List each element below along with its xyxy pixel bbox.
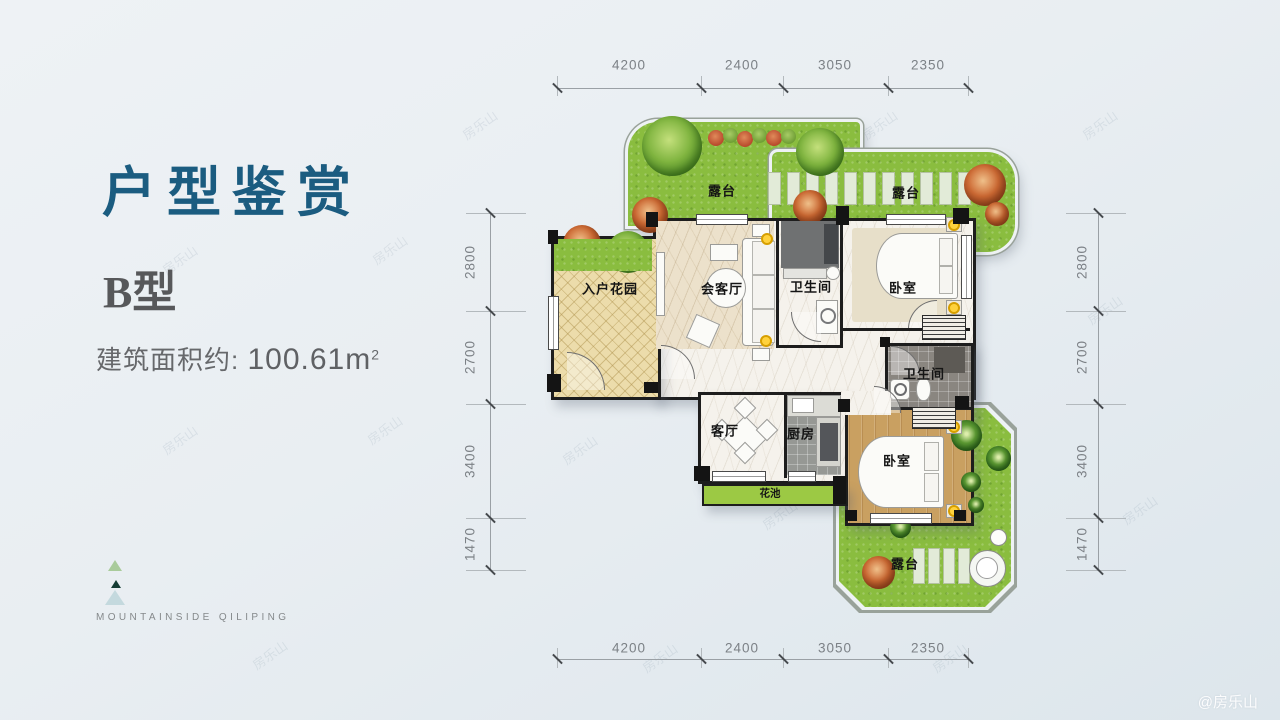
flower-bush <box>752 128 767 143</box>
tree-green <box>796 128 844 176</box>
dim-value: 3400 <box>463 444 478 478</box>
wash-basin2 <box>894 383 907 396</box>
tree-red <box>985 202 1009 226</box>
lamp <box>761 233 773 245</box>
pillow <box>939 238 953 266</box>
stepping-stone <box>928 548 940 584</box>
stove <box>820 423 838 461</box>
wall-corner <box>833 476 846 504</box>
dim-ext <box>466 213 526 214</box>
room-label-flower-bed: 花池 <box>760 486 781 501</box>
palm-tree <box>986 446 1011 471</box>
window <box>870 513 932 524</box>
watermark-text: 房乐山 <box>1118 491 1161 529</box>
room-label-bedroom1: 卧室 <box>889 278 917 297</box>
pillow <box>924 473 939 502</box>
watermark-text: 房乐山 <box>558 431 601 469</box>
tree-red <box>793 190 827 224</box>
dim-value: 3050 <box>818 58 852 73</box>
room-label-terrace-tl: 露台 <box>708 181 736 200</box>
flower-bush <box>781 129 796 144</box>
wall-corner <box>644 382 658 393</box>
wall-corner <box>547 374 561 392</box>
wall-corner <box>838 399 850 412</box>
tree-green <box>642 116 702 176</box>
pillow <box>924 442 939 471</box>
wardrobe <box>912 407 956 429</box>
palm-tree <box>968 497 984 513</box>
lamp <box>948 302 960 314</box>
dim-ext <box>1066 213 1126 214</box>
area-text: 建筑面积约: 100.61m2 <box>96 340 380 377</box>
dim-value: 4200 <box>612 641 646 656</box>
watermark-text: 房乐山 <box>368 231 411 269</box>
stepping-stone <box>768 172 781 205</box>
dim-value: 1470 <box>1075 527 1090 561</box>
dim-value: 1470 <box>463 527 478 561</box>
tv-table <box>710 244 738 261</box>
tree-red <box>964 164 1006 206</box>
wall <box>776 345 843 348</box>
entry-garden-lawn <box>554 239 652 271</box>
window <box>788 471 816 482</box>
brand-name: MOUNTAINSIDE QILIPING <box>96 612 289 623</box>
sofa-cushion <box>752 241 775 275</box>
wall <box>776 218 779 348</box>
area-value: 100.61m <box>247 343 371 376</box>
bath-cabinet <box>824 224 838 264</box>
watermark-text: 房乐山 <box>158 421 201 459</box>
tv-cabinet <box>656 252 665 316</box>
stepping-stone <box>920 172 933 205</box>
stepping-stone <box>825 172 838 205</box>
watermark-text: 房乐山 <box>1083 291 1126 329</box>
sofa-cushion <box>752 275 775 309</box>
wall-corner <box>953 208 969 224</box>
corner-watermark: @房乐山 <box>1198 691 1258 712</box>
room-label-reception: 会客厅 <box>701 279 743 298</box>
stepping-stone <box>863 172 876 205</box>
area-superscript: 2 <box>371 346 380 362</box>
wall-corner <box>548 230 558 244</box>
dim-value: 3050 <box>818 641 852 656</box>
window <box>961 235 972 299</box>
dim-value: 2800 <box>1075 245 1090 279</box>
logo-triangle-icon <box>111 580 121 588</box>
wall-corner <box>646 212 658 227</box>
wash-basin <box>820 308 836 324</box>
flower-bush <box>737 131 753 147</box>
page-title: 户型鉴赏 <box>102 148 362 227</box>
logo-triangle-icon <box>108 560 122 571</box>
dim-value: 2700 <box>463 340 478 374</box>
lamp <box>760 335 772 347</box>
room-label-living: 客厅 <box>711 421 739 440</box>
logo-triangle-icon <box>105 590 125 605</box>
kitchen-sink <box>792 398 814 413</box>
window <box>548 296 559 350</box>
stepping-stone <box>844 172 857 205</box>
bed2 <box>858 436 944 508</box>
room-label-terrace-bottom: 露台 <box>891 554 919 573</box>
dim-line-bottom <box>557 659 968 660</box>
dim-value: 2700 <box>1075 340 1090 374</box>
dim-ext <box>466 311 526 312</box>
dim-ext <box>1066 570 1126 571</box>
flower-bush <box>766 130 782 146</box>
dim-value: 2800 <box>463 245 478 279</box>
dim-value: 2400 <box>725 641 759 656</box>
room-label-bedroom2: 卧室 <box>883 451 911 470</box>
side-table <box>752 348 770 361</box>
watermark-text: 房乐山 <box>363 411 406 449</box>
window <box>712 471 766 482</box>
dim-value: 3400 <box>1075 444 1090 478</box>
watermark-text: 房乐山 <box>458 106 501 144</box>
wall-corner <box>845 510 857 521</box>
pillow <box>939 266 953 294</box>
wardrobe <box>922 315 966 340</box>
flower-bush <box>708 130 724 146</box>
area-label: 建筑面积约: <box>96 345 239 375</box>
room-label-bath2: 卫生间 <box>903 364 945 383</box>
room-label-kitchen: 厨房 <box>787 424 815 443</box>
window <box>886 214 946 225</box>
palm-tree <box>961 472 981 492</box>
room-label-terrace-tr: 露台 <box>892 183 920 202</box>
flower-bush <box>723 128 738 143</box>
dim-value: 2400 <box>725 58 759 73</box>
wall-corner <box>955 396 969 409</box>
room-label-bath1: 卫生间 <box>790 277 832 296</box>
floorplan-page: 房乐山 房乐山 房乐山 房乐山 房乐山 房乐山 房乐山 房乐山 房乐山 房乐山 … <box>0 0 1280 720</box>
dim-value: 2350 <box>911 641 945 656</box>
wall-corner <box>836 206 849 225</box>
watermark-text: 房乐山 <box>858 106 901 144</box>
dim-ext <box>466 518 526 519</box>
watermark-text: 房乐山 <box>1078 106 1121 144</box>
dim-value: 2350 <box>911 58 945 73</box>
wall-corner <box>694 466 710 481</box>
dim-ext <box>1066 311 1126 312</box>
dim-line-top <box>557 88 968 89</box>
wall-corner <box>954 510 966 521</box>
sofa <box>742 238 774 346</box>
dim-ext <box>466 404 526 405</box>
side-table-round <box>990 529 1007 546</box>
round-chair-seat <box>976 557 998 579</box>
stepping-stone <box>943 548 955 584</box>
window <box>696 214 748 225</box>
watermark-text: 房乐山 <box>248 636 291 674</box>
dim-value: 4200 <box>612 58 646 73</box>
room-label-entry-garden: 入户花园 <box>582 279 638 298</box>
unit-type-label: B型 <box>103 256 176 320</box>
stepping-stone <box>939 172 952 205</box>
wall-corner <box>880 337 890 347</box>
dim-ext <box>1066 404 1126 405</box>
dim-ext <box>466 570 526 571</box>
dim-ext <box>1066 518 1126 519</box>
